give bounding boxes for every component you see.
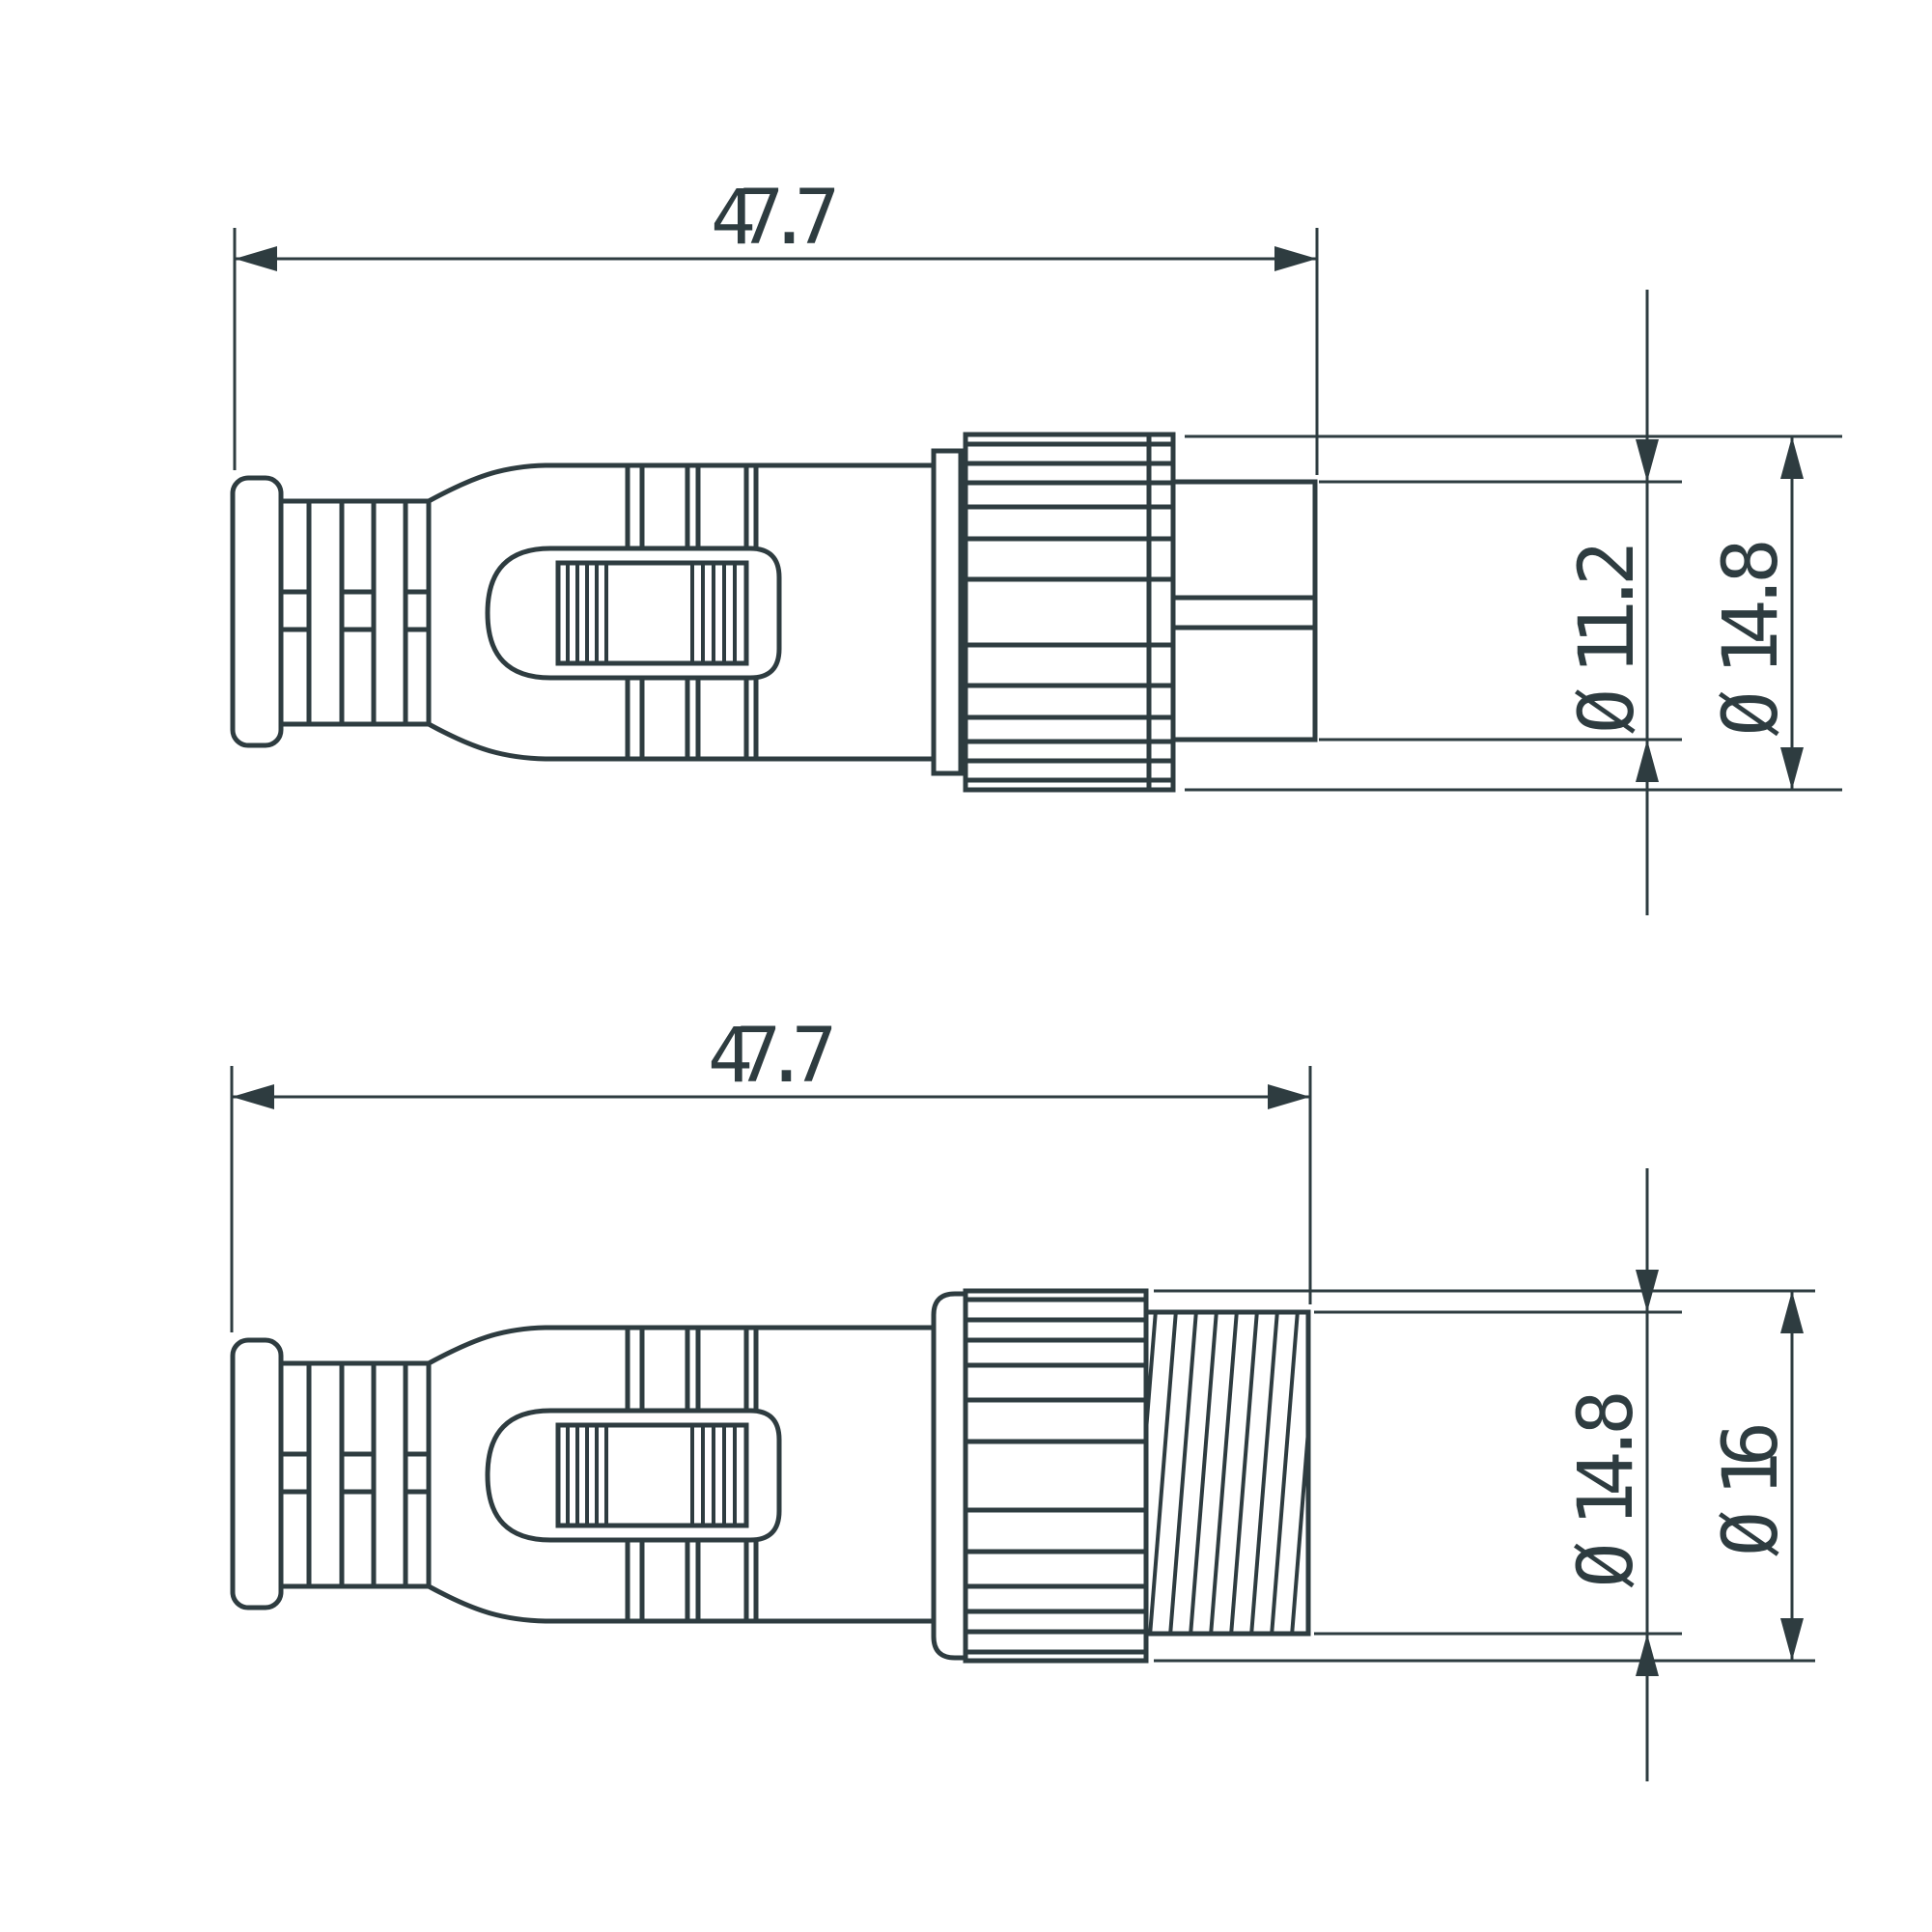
dimension-length-label: 47.7 <box>711 175 840 262</box>
dimension-thread-diameter-label: Ø 14.8 <box>1563 1390 1650 1588</box>
arrowhead-right <box>1268 1084 1310 1109</box>
knurling-lines <box>966 1300 1146 1652</box>
dimension-nut-diameter-label: Ø 16 <box>1708 1421 1795 1556</box>
coupling-nut <box>966 1291 1146 1661</box>
arrowhead-bottom <box>1780 1618 1804 1661</box>
dimension-insert-diameter-label: Ø 11.2 <box>1564 541 1651 734</box>
view-male-connector: 47.7 <box>233 175 1842 915</box>
arrowhead-bottom <box>1780 747 1804 790</box>
arrowhead-bottom <box>1636 740 1659 782</box>
dimension-length-bottom: 47.7 <box>232 1013 1310 1332</box>
grip-serrations <box>568 1425 735 1526</box>
knurling-lines <box>966 444 1173 780</box>
arrowhead-bottom <box>1636 1634 1659 1676</box>
arrowhead-left <box>232 1084 274 1109</box>
arrowhead-top <box>1636 439 1659 482</box>
latch-grip <box>488 1411 779 1540</box>
male-insert <box>1173 482 1315 740</box>
dimension-length-top: 47.7 <box>235 175 1317 475</box>
view-threaded-connector: 47.7 <box>232 1013 1815 1781</box>
arrowhead-top <box>1780 1291 1804 1333</box>
arrowhead-left <box>235 246 277 271</box>
cable-end-cap <box>233 1340 281 1608</box>
connector-dimension-drawing: 47.7 <box>0 0 1932 1932</box>
connector-body <box>429 465 934 759</box>
arrowhead-right <box>1274 246 1317 271</box>
dimension-insert-diameter: Ø 11.2 <box>1319 290 1682 915</box>
cable-end-cap <box>233 478 281 745</box>
connector-body <box>429 1328 934 1621</box>
coupling-nut <box>966 434 1173 790</box>
strain-relief-boot <box>281 501 429 724</box>
nut-flange-collar <box>934 1294 966 1658</box>
arrowhead-top <box>1780 436 1804 479</box>
threaded-sleeve <box>1130 1310 1338 1636</box>
dimension-nut-diameter-label: Ø 14.8 <box>1708 539 1795 737</box>
technical-drawing-canvas: 47.7 <box>0 0 1932 1932</box>
body-collar <box>934 451 961 773</box>
latch-grip <box>488 548 779 678</box>
dimension-length-label: 47.7 <box>708 1013 837 1100</box>
dimension-nut-diameter-top: Ø 14.8 <box>1185 436 1842 790</box>
dimension-thread-diameter: Ø 14.8 <box>1314 1168 1682 1781</box>
strain-relief-boot <box>281 1363 429 1586</box>
grip-serrations <box>568 563 735 663</box>
